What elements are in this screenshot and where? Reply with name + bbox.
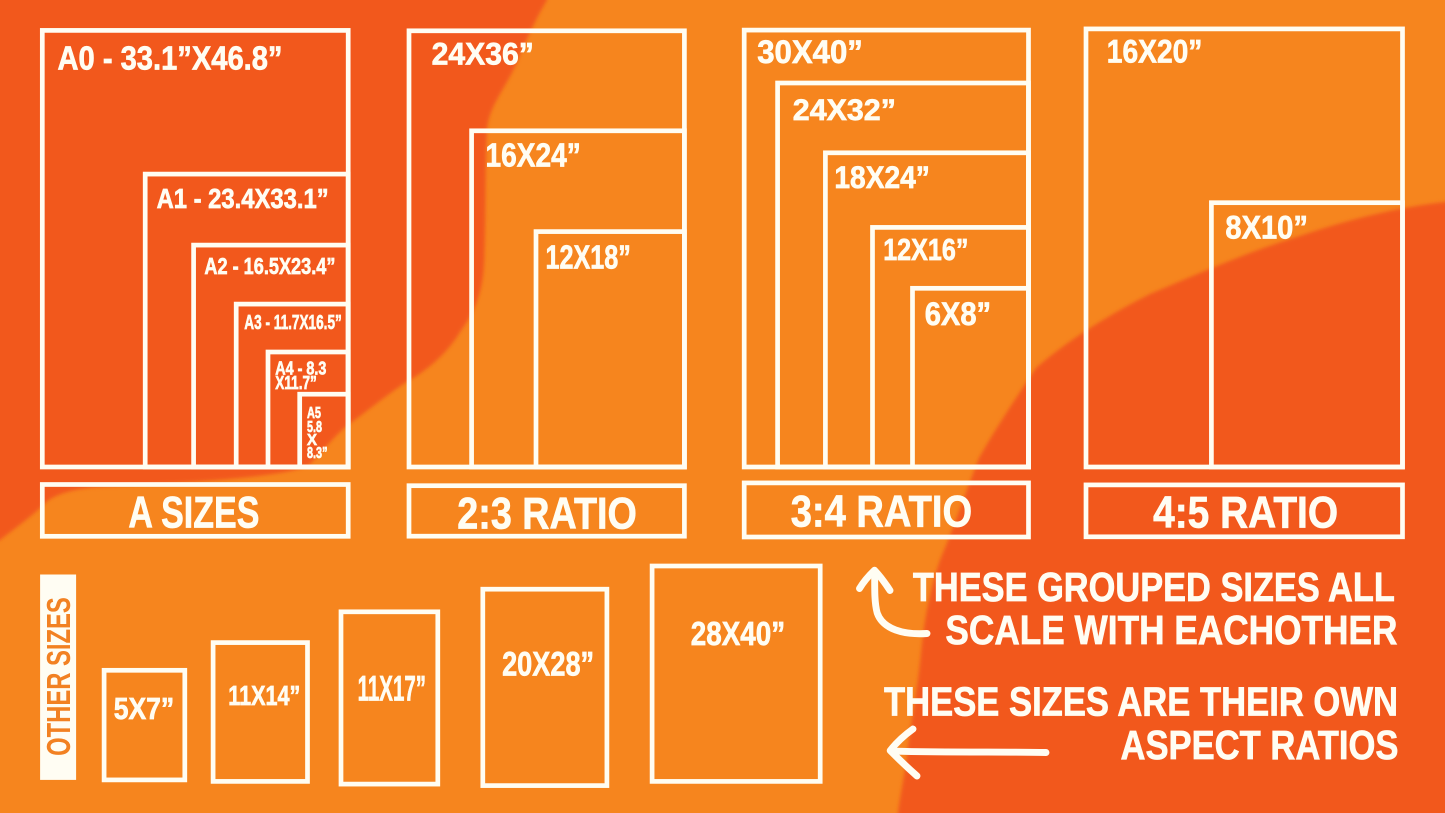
svg-text:11X17”: 11X17” — [358, 669, 426, 708]
svg-text:ASPECT RATIOS: ASPECT RATIOS — [1121, 722, 1399, 768]
svg-text:8.3”: 8.3” — [307, 445, 328, 462]
svg-text:4:5 RATIO: 4:5 RATIO — [1153, 488, 1338, 537]
svg-text:11X14”: 11X14” — [228, 680, 300, 711]
svg-text:X11.7”: X11.7” — [275, 372, 317, 393]
svg-text:30X40”: 30X40” — [757, 34, 863, 70]
svg-text:A0 - 33.1”X46.8”: A0 - 33.1”X46.8” — [58, 40, 283, 77]
svg-text:THESE SIZES ARE THEIR OWN: THESE SIZES ARE THEIR OWN — [884, 679, 1398, 725]
svg-text:2:3 RATIO: 2:3 RATIO — [457, 490, 637, 539]
svg-text:5X7”: 5X7” — [114, 691, 175, 726]
svg-text:28X40”: 28X40” — [691, 616, 785, 653]
svg-text:SCALE WITH EACHOTHER: SCALE WITH EACHOTHER — [945, 607, 1397, 653]
svg-text:24X32”: 24X32” — [793, 94, 896, 127]
svg-text:A SIZES: A SIZES — [128, 489, 259, 538]
svg-text:18X24”: 18X24” — [834, 159, 930, 195]
svg-text:OTHER SIZES: OTHER SIZES — [40, 597, 77, 756]
svg-text:6X8”: 6X8” — [925, 296, 991, 332]
svg-text:20X28”: 20X28” — [502, 645, 594, 683]
svg-text:A3 - 11.7X16.5”: A3 - 11.7X16.5” — [244, 311, 341, 334]
svg-text:A2 - 16.5X23.4”: A2 - 16.5X23.4” — [204, 253, 335, 279]
svg-text:12X18”: 12X18” — [546, 239, 631, 276]
svg-text:16X20”: 16X20” — [1107, 34, 1203, 70]
svg-text:24X36”: 24X36” — [432, 36, 534, 72]
svg-text:THESE GROUPED SIZES ALL: THESE GROUPED SIZES ALL — [913, 564, 1395, 610]
svg-text:12X16”: 12X16” — [883, 232, 968, 267]
svg-text:8X10”: 8X10” — [1225, 209, 1308, 245]
svg-text:3:4 RATIO: 3:4 RATIO — [791, 488, 972, 537]
svg-text:16X24”: 16X24” — [486, 137, 581, 174]
svg-text:A1 - 23.4X33.1”: A1 - 23.4X33.1” — [157, 183, 329, 214]
